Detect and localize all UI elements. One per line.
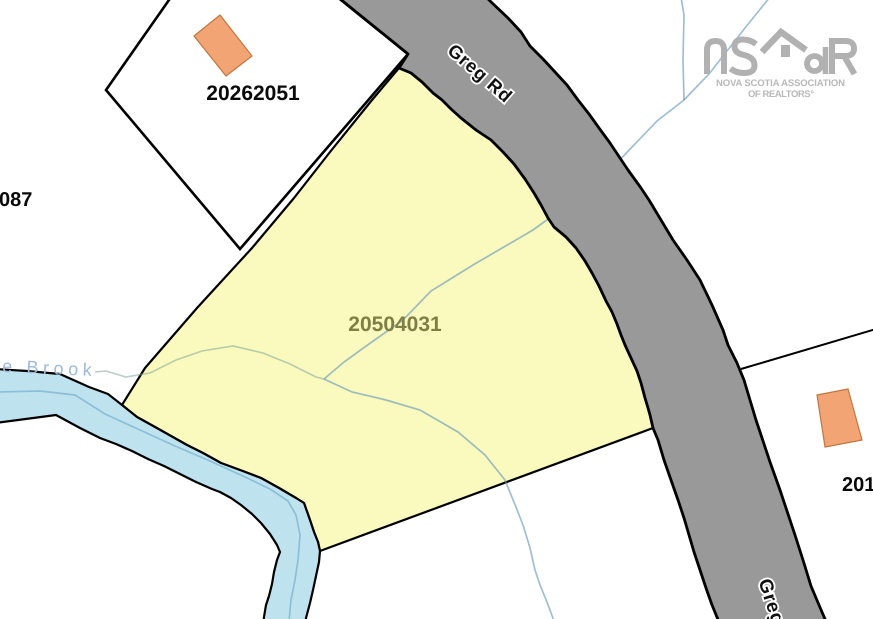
svg-text:e Brook: e Brook [2, 356, 97, 380]
svg-text:OF REALTORS°: OF REALTORS° [748, 89, 814, 100]
svg-text:20504031: 20504031 [348, 313, 442, 336]
svg-text:NOVA SCOTIA ASSOCIATION: NOVA SCOTIA ASSOCIATION [716, 78, 845, 89]
svg-text:20262051: 20262051 [206, 82, 300, 105]
svg-text:2012: 2012 [842, 474, 873, 496]
svg-text:087: 087 [0, 189, 32, 211]
